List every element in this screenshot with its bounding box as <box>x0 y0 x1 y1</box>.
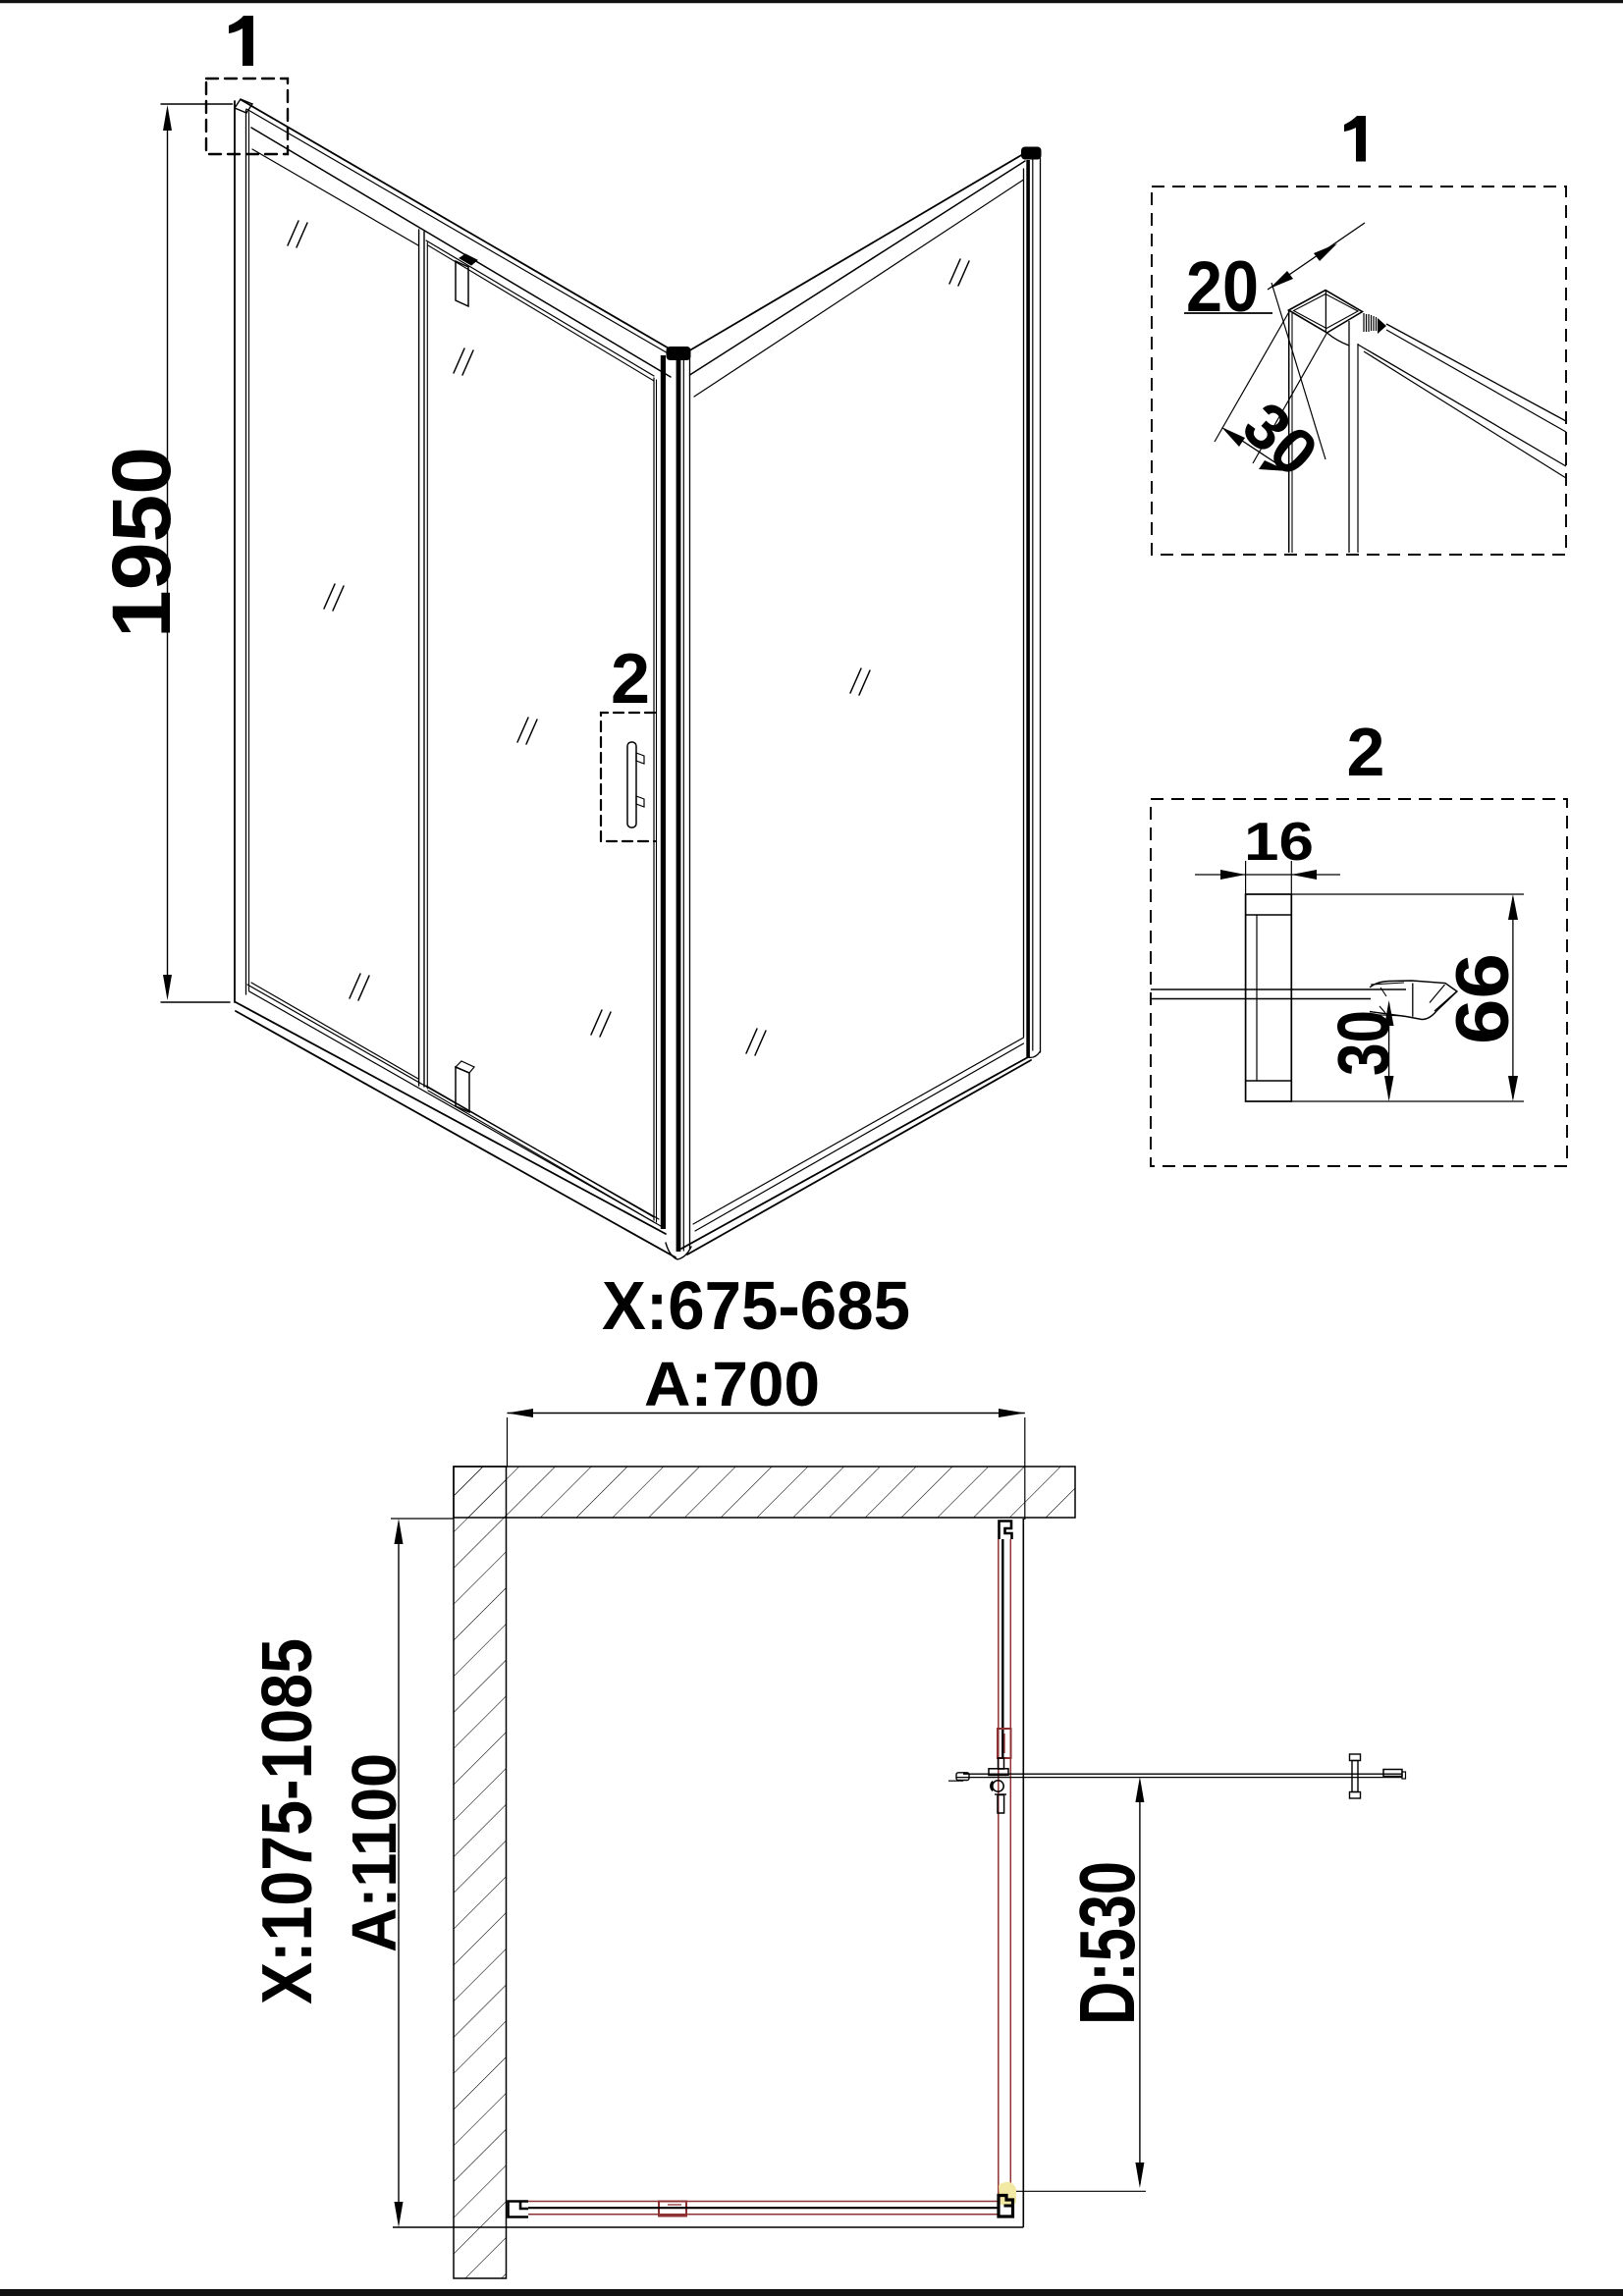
svg-text:X:675-685: X:675-685 <box>602 1267 910 1344</box>
svg-text:X:1075-1085: X:1075-1085 <box>248 1638 327 2004</box>
svg-text:2: 2 <box>611 640 650 719</box>
svg-text:2: 2 <box>1347 714 1385 790</box>
svg-text:66: 66 <box>1441 953 1525 1044</box>
svg-text:20: 20 <box>1186 247 1259 327</box>
svg-text:30: 30 <box>1323 1010 1404 1076</box>
svg-text:16: 16 <box>1244 811 1314 872</box>
svg-text:1950: 1950 <box>95 447 188 638</box>
svg-text:A:700: A:700 <box>644 1349 820 1419</box>
svg-text:D:530: D:530 <box>1063 1861 1151 2025</box>
svg-text:A:1100: A:1100 <box>339 1753 409 1952</box>
